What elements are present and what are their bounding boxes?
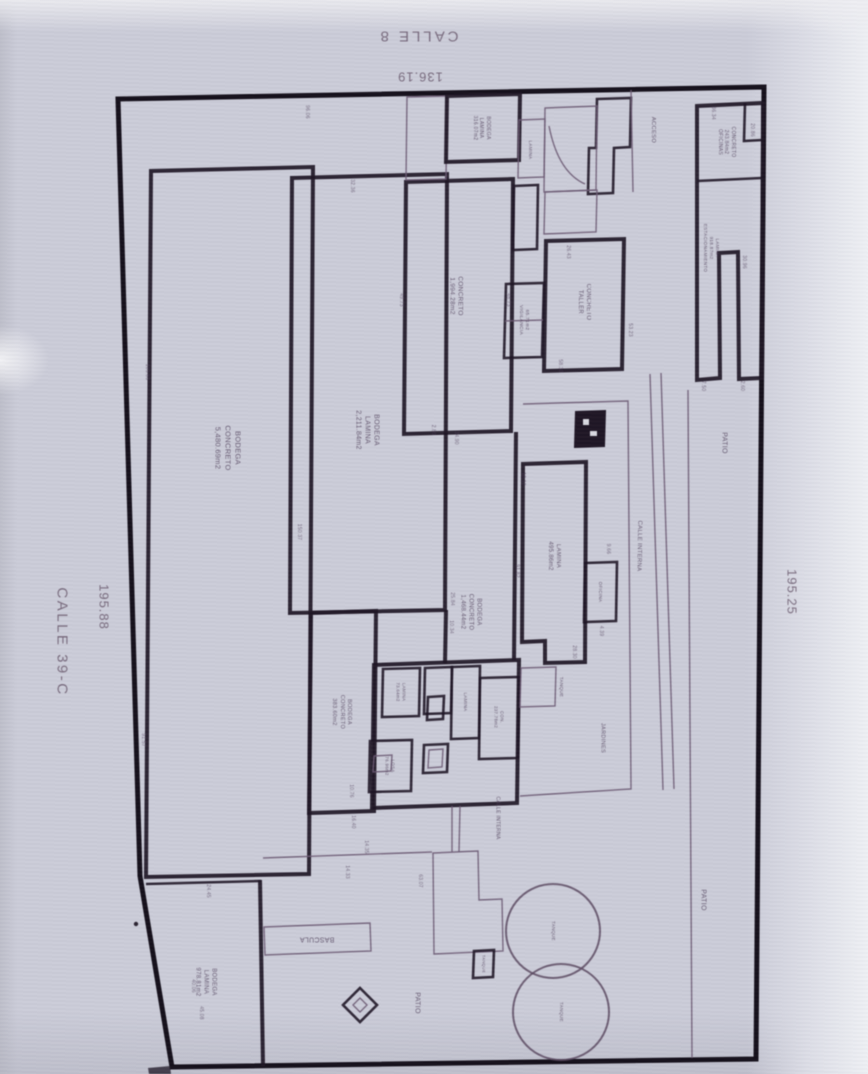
dimension-number: 14.33 [344,865,350,879]
dimension-number: 26.43 [565,245,571,259]
room-tiny-2-inner [428,749,443,768]
label-oficina: OFICINA [597,582,603,603]
patio-right-line [688,390,692,1058]
top-room-g [544,190,597,234]
site-plan-drawing: BODEGA CONCRETO 5,480.69m2BODEGA LAMINA … [0,0,868,1074]
label-concreto-oficinas: CONCRETO 243.84m2 OFICINAS [716,127,736,158]
dimension-number: 63.07 [417,874,423,888]
tanque-box [520,667,556,707]
top-room-curve [549,126,585,184]
label-lamina-495: LAMINA 495.86m2 [545,541,561,570]
label-lamina-7364: LAMINA 73.64m2 [395,682,406,701]
dimension-left: 195.88 [97,584,112,630]
dimension-number: 58.30 [557,359,563,373]
dimension-number: 45.08 [198,1006,204,1020]
dimension-number: 10.10 [520,472,526,486]
funnel-neck [452,806,460,852]
calle-interna-line-2 [661,373,674,789]
dimension-number: 34.90 [453,431,459,445]
dimension-number: 48.73 [505,293,511,307]
label-bodega-lamina-978: BODEGA LAMINA 978.81m2 [193,967,216,996]
label-lamina-sm-top: LAMINA [527,141,533,160]
label-tank-1: TANQUE [550,921,556,941]
u-building-divider [697,178,762,181]
label-lamina-estacionamiento: LAMINA 918.87m2 ESTACIONAMIENTO [702,224,720,273]
label-calle-interna-2: CALLE INTERNA [494,796,501,839]
ink-dot [134,922,138,926]
street-label-top: CALLE 8 [377,28,458,45]
north-diamond-inner [353,998,367,1012]
label-acceso: ACCESO [648,117,656,143]
wall-divider-b [514,432,516,660]
dimension-number: 2.60 [739,381,745,392]
wall-divider-a [445,610,446,663]
label-losa: LOSA 76.96m2 [384,756,395,775]
north-diamond [343,988,377,1022]
building-bodega-concreto-main [146,167,313,877]
road-bottom-line [263,852,432,858]
dimension-number: 20.86 [749,123,755,137]
dimension-right: 195.25 [785,569,800,615]
dimension-number: 24.45 [205,884,211,898]
dimension-number: 103.83 [144,364,150,381]
wall-bottom-horiz [146,881,261,884]
wall-bottom-left [260,880,263,1066]
dimension-number: 32.36 [349,179,355,193]
label-calle-interna: CALLE INTERNA [634,520,643,571]
dimension-number: 14.35 [363,840,369,854]
label-bodega-concreto-1468: BODEGA CONCRETO 1,468.44m2 [458,594,481,631]
label-lamina-room: LAMINA [462,693,468,712]
top-rooms-stepped [588,98,631,194]
dimension-number: 30.96 [741,255,747,269]
top-room-f [513,185,538,250]
label-bascula: BASCULA [300,934,335,943]
label-bodega-concreto-main: BODEGA CONCRETO 5,480.69m2 [213,425,242,470]
funnel-shape [433,851,503,954]
label-vigilancia: 65.71m2 VIGILANCIA [517,305,529,335]
rooms-cluster-outline [372,660,519,808]
label-patio-bottom-right: PATIO [698,889,707,910]
room-tiny-1 [427,696,444,720]
dimension-number: 28.30 [571,645,577,659]
top-room-a [406,96,447,180]
dimension-number: 9.66 [605,544,611,555]
scanned-site-plan-page: BODEGA CONCRETO 5,480.69m2BODEGA LAMINA … [0,0,868,1074]
label-concreto-taller: CONCRETO TALLER [575,284,591,321]
label-bodega-concreto-383: BODEGA CONCRETO 383.60m2 [330,695,352,729]
dimension-number: 36.34 [710,106,716,120]
dimension-number: 49.73 [398,293,404,307]
dimension-number: 96.06 [304,105,310,119]
scan-smudge [148,1066,171,1074]
jardines-boundary [520,401,631,796]
label-tanque-small: TANQUE [481,955,486,973]
dimension-number: 150.37 [296,524,302,541]
filled-structure [575,411,605,447]
street-label-left: CALLE 39-C [54,587,71,696]
dimension-number: 7.50 [700,381,706,392]
plan-linework [0,0,868,1074]
dimension-number: 25.84 [449,592,455,606]
label-con-23778: CON. 237.78m2 [493,706,504,728]
dimension-top: 136.19 [397,70,443,85]
calle-interna-line-1 [650,374,663,790]
label-bodega-lamina-main: BODEGA LAMINA 2,211.84m2 [353,410,380,449]
dimension-number: 40.06 [190,979,196,993]
dimension-number: 10.34 [448,620,454,634]
label-concreto-1994: CONCRETO 1,994.28m2 [447,276,464,315]
dimension-number: 91.82 [514,564,520,578]
label-jardines: JARDINES [598,723,605,753]
label-bodega-lamina-316: BODEGA LAMINA 316.07m2 [471,116,491,141]
room-tiny-2 [423,744,448,773]
acceso-line [631,90,633,192]
label-patio-right: PATIO [719,432,728,453]
dimension-number: 16.40 [350,815,356,829]
dimension-number: 10.76 [348,784,354,798]
dimension-number: 53.23 [627,323,633,337]
label-tanque-box: TANQUE [558,677,564,698]
dimension-number: 2.80 [430,425,436,436]
dimension-number: 4.39 [598,626,604,637]
dimension-number: 91.57 [140,733,146,747]
label-patio-center: PATIO [412,992,421,1013]
label-tank-2: TANQUE [558,1002,564,1022]
